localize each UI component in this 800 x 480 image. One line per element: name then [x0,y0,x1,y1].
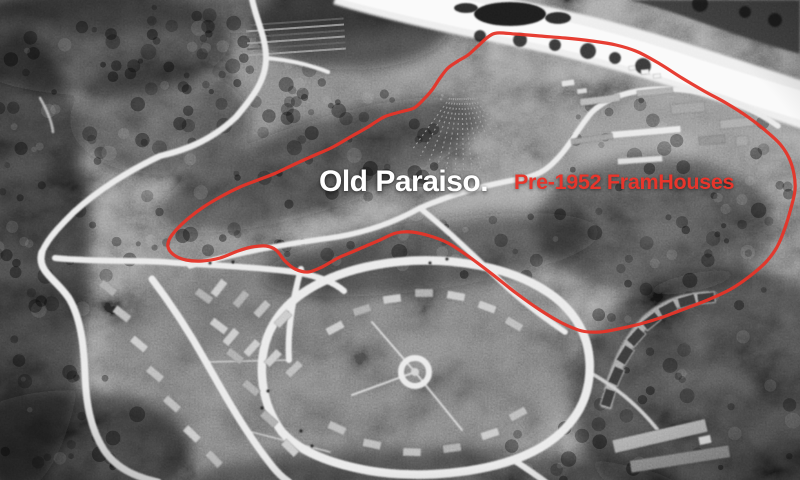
annotated-aerial-photo: Old Paraiso. Pre-1952 FramHouses [0,0,800,480]
era-label: Pre-1952 FramHouses [514,172,734,194]
old-paraiso-label: Old Paraiso. [319,167,488,197]
aerial-photo-canvas [0,0,800,480]
vignette [0,0,800,480]
